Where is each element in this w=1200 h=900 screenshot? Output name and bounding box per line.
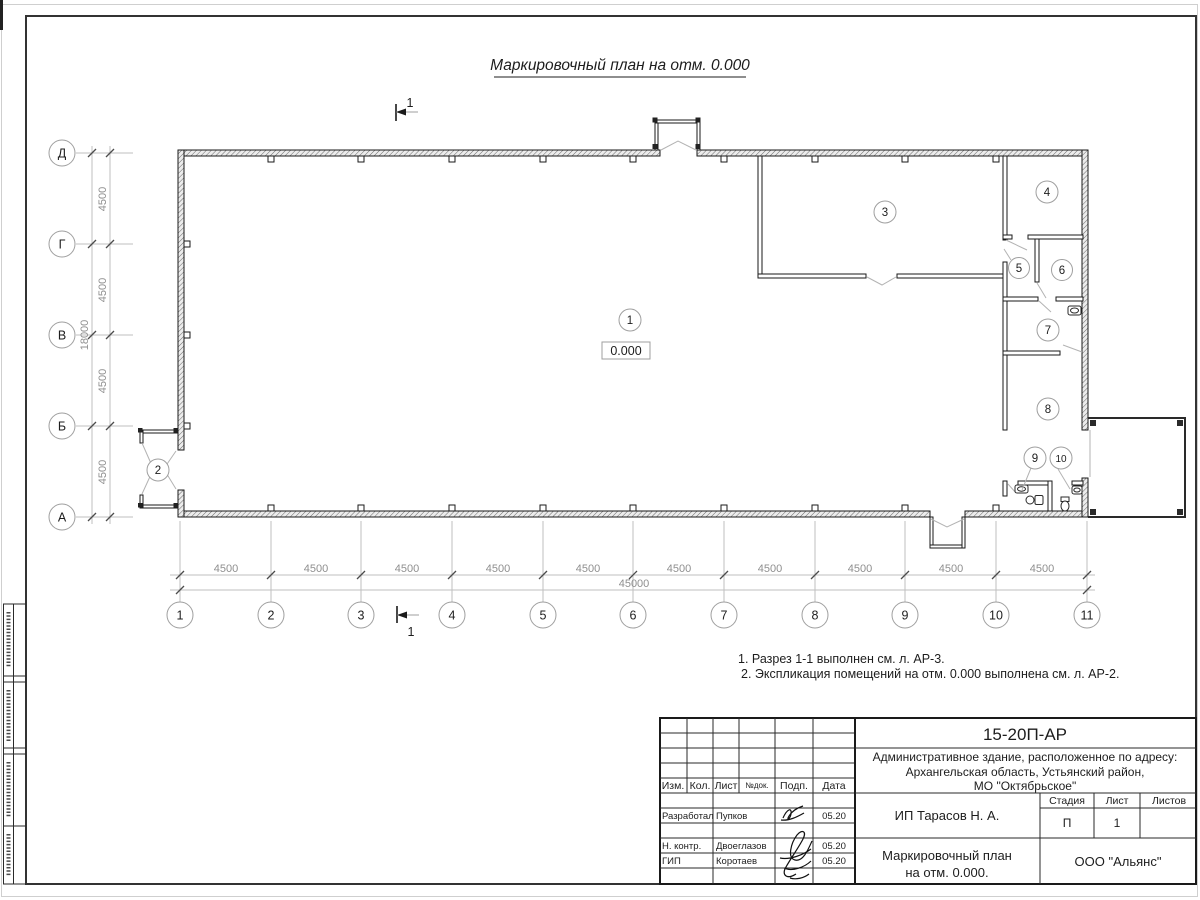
room-number: 8 xyxy=(1045,404,1051,416)
note-line: 2. Экспликация помещений на отм. 0.000 в… xyxy=(741,667,1119,681)
role-label: Разработал xyxy=(662,811,714,822)
door-swing xyxy=(661,141,696,150)
section-number: 1 xyxy=(408,625,415,639)
room-label: 8 xyxy=(1037,398,1059,420)
plan-canvas: Маркировочный план на отм. 0.000 xyxy=(0,0,1200,900)
axis-label: Г xyxy=(59,238,66,252)
section-marks: 1 1 xyxy=(396,96,419,639)
bottom-vestibule xyxy=(930,517,965,548)
room-number: 2 xyxy=(155,465,161,477)
axis-label: А xyxy=(58,511,67,525)
stage-label: Стадия xyxy=(1049,795,1085,807)
dim-text: 4500 xyxy=(486,563,510,575)
dim-text: 4500 xyxy=(304,563,328,575)
dim-text: 4500 xyxy=(758,563,782,575)
col-list: Лист xyxy=(715,780,738,792)
section-mark-bottom: 1 xyxy=(397,606,419,639)
axes-bottom: 1 2 3 4 5 6 7 8 9 10 11 4500 4500 4500 4… xyxy=(167,521,1100,628)
section-number: 1 xyxy=(407,96,414,110)
sink-icon xyxy=(1072,486,1082,494)
plan-title: Маркировочный план на отм. 0.000 xyxy=(490,57,750,77)
role-name: Коротаев xyxy=(716,856,757,867)
room-number: 4 xyxy=(1044,187,1051,199)
company-name: ООО "Альянс" xyxy=(1075,854,1162,869)
sheet-number-value: 1 xyxy=(1114,816,1121,830)
role-date: 05.20 xyxy=(822,841,846,852)
room-label: 2 xyxy=(147,459,169,481)
notes: 1. Разрез 1-1 выполнен см. л. АР-3. 2. Э… xyxy=(738,652,1119,681)
axis-label: 2 xyxy=(268,609,275,623)
room-label: 3 xyxy=(874,201,896,223)
dim-text: 4500 xyxy=(214,563,238,575)
door-swing xyxy=(931,519,964,527)
doc-number: 15-20П-АР xyxy=(983,725,1067,744)
sheet-name: на отм. 0.000. xyxy=(905,865,988,880)
room-number: 10 xyxy=(1055,454,1067,465)
room-label: 5 xyxy=(1009,258,1030,279)
col-izm: Изм. xyxy=(662,780,685,792)
signature-scribble xyxy=(780,832,812,879)
dim-total-text: 45000 xyxy=(619,578,650,590)
dim-text: 4500 xyxy=(97,278,109,302)
axis-label: 7 xyxy=(721,609,728,623)
note-line: 1. Разрез 1-1 выполнен см. л. АР-3. xyxy=(738,652,945,666)
sink-icon xyxy=(1068,306,1081,315)
axis-label: Б xyxy=(58,420,66,434)
role-name: Двоеглазов xyxy=(716,841,767,852)
col-podp: Подп. xyxy=(780,780,808,792)
sink-icon xyxy=(1015,485,1028,493)
dim-text: 4500 xyxy=(848,563,872,575)
dim-text: 4500 xyxy=(97,187,109,211)
stamp-roles: Разработал Пупков 05.20 Н. контр. Двоегл… xyxy=(662,811,846,867)
room-number: 9 xyxy=(1032,453,1038,465)
dim-text: 4500 xyxy=(97,369,109,393)
axis-label: 4 xyxy=(449,609,456,623)
col-data: Дата xyxy=(822,780,845,792)
room-label: 6 xyxy=(1052,260,1073,281)
room-label: 7 xyxy=(1037,319,1059,341)
object-line: Административное здание, расположенное п… xyxy=(873,750,1178,764)
sheet-label: Лист xyxy=(1106,795,1129,807)
margin-stamp-fragment xyxy=(0,0,3,30)
sheet-name: Маркировочный план xyxy=(882,848,1012,863)
axis-label: 9 xyxy=(902,609,909,623)
drawing-sheet: Маркировочный план на отм. 0.000 xyxy=(0,0,1200,900)
dim-text: 4500 xyxy=(667,563,691,575)
top-vestibule xyxy=(653,118,701,151)
axis-label: 3 xyxy=(358,609,365,623)
axis-label: 11 xyxy=(1081,609,1094,623)
room-number: 1 xyxy=(627,315,633,327)
object-line: МО "Октябрьское" xyxy=(974,779,1076,793)
role-date: 05.20 xyxy=(822,856,846,867)
dim-text: 4500 xyxy=(97,460,109,484)
dim-total-text: 18000 xyxy=(79,320,91,351)
right-porch xyxy=(1088,418,1185,517)
stage-value: П xyxy=(1063,816,1072,830)
room-label: 10 xyxy=(1050,447,1072,469)
room-number: 3 xyxy=(882,207,888,219)
room-label: 1 xyxy=(619,309,641,331)
dim-text: 4500 xyxy=(395,563,419,575)
left-margin-table xyxy=(3,604,26,884)
sheets-label: Листов xyxy=(1152,795,1187,807)
role-label: Н. контр. xyxy=(662,841,701,852)
boiler-icon xyxy=(1026,496,1043,505)
role-date: 05.20 xyxy=(822,811,846,822)
section-mark-top: 1 xyxy=(396,96,418,121)
stamp-header-row: Изм. Кол. Лист №док. Подп. Дата xyxy=(662,780,846,792)
client-name: ИП Тарасов Н. А. xyxy=(895,808,1000,823)
exterior-walls xyxy=(178,150,1088,517)
axis-label: 8 xyxy=(812,609,819,623)
role-name: Пупков xyxy=(716,811,747,822)
axis-label: 6 xyxy=(630,609,637,623)
axis-label: В xyxy=(58,329,66,343)
room-number: 6 xyxy=(1059,265,1065,277)
dim-text: 4500 xyxy=(576,563,600,575)
room-number: 7 xyxy=(1045,325,1051,337)
role-label: ГИП xyxy=(662,856,681,867)
object-line: Архангельская область, Устьянский район, xyxy=(906,765,1145,779)
room-number: 5 xyxy=(1016,263,1022,275)
elevation-mark: 0.000 xyxy=(602,342,650,359)
elevation-value: 0.000 xyxy=(610,344,641,358)
axis-label: 5 xyxy=(540,609,547,623)
axis-label: 10 xyxy=(989,609,1003,623)
room-label: 4 xyxy=(1036,181,1058,203)
col-kol: Кол. xyxy=(690,780,711,792)
title-block: Изм. Кол. Лист №док. Подп. Дата Разработ… xyxy=(660,718,1196,884)
axis-label: 1 xyxy=(177,609,184,623)
axes-left: Д Г В Б А 4500 4500 4500 4500 18000 xyxy=(49,140,133,530)
col-ndok: №док. xyxy=(745,781,768,790)
plan-title-text: Маркировочный план на отм. 0.000 xyxy=(490,57,750,74)
toilet-icon xyxy=(1061,497,1069,511)
room-label: 9 xyxy=(1024,447,1046,469)
dim-text: 4500 xyxy=(1030,563,1054,575)
axis-label: Д xyxy=(58,147,67,161)
dim-text: 4500 xyxy=(939,563,963,575)
room-labels: 1 2 3 4 5 6 7 8 9 10 0.000 xyxy=(147,181,1073,490)
